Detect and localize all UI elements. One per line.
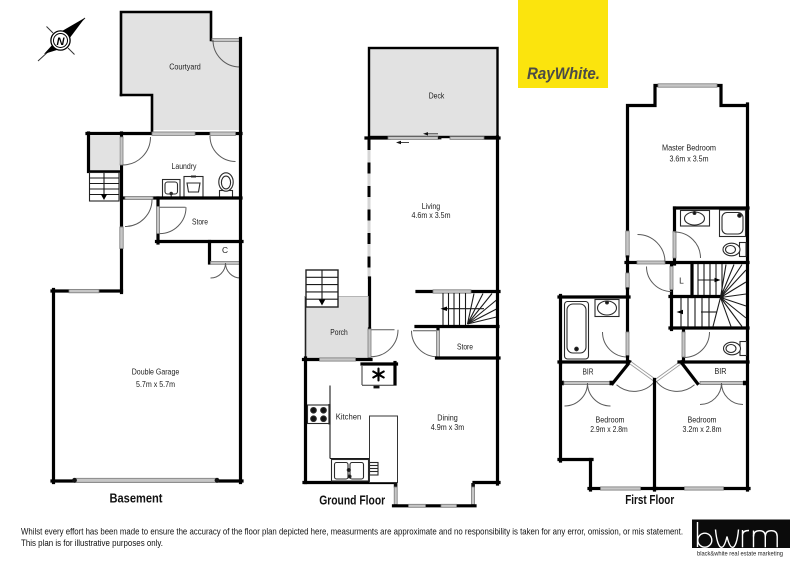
svg-text:Store: Store xyxy=(457,342,473,352)
svg-text:RayWhite.: RayWhite. xyxy=(527,65,600,83)
svg-text:Porch: Porch xyxy=(330,327,348,337)
svg-text:Dining: Dining xyxy=(437,413,458,423)
svg-text:Laundry: Laundry xyxy=(172,161,198,171)
svg-text:Master Bedroom: Master Bedroom xyxy=(662,143,716,153)
svg-text:Ground Floor: Ground Floor xyxy=(319,493,385,508)
svg-text:L: L xyxy=(679,276,684,286)
svg-text:N: N xyxy=(57,36,66,48)
svg-text:Store: Store xyxy=(192,217,208,227)
svg-text:Bedroom: Bedroom xyxy=(596,414,625,424)
svg-text:5.7m x 5.7m: 5.7m x 5.7m xyxy=(136,379,175,389)
svg-text:black&white real estate market: black&white real estate marketing xyxy=(697,551,784,558)
svg-text:3.6m x 3.5m: 3.6m x 3.5m xyxy=(670,154,709,164)
svg-text:Bedroom: Bedroom xyxy=(688,414,717,424)
svg-text:Whilst every effort has been m: Whilst every effort has been made to ens… xyxy=(21,527,683,538)
svg-text:4.9m x 3m: 4.9m x 3m xyxy=(431,422,465,432)
svg-text:Basement: Basement xyxy=(110,491,164,506)
svg-text:Courtyard: Courtyard xyxy=(169,62,201,72)
svg-text:Kitchen: Kitchen xyxy=(336,412,362,422)
svg-text:Double Garage: Double Garage xyxy=(132,367,180,377)
svg-text:2.9m x 2.8m: 2.9m x 2.8m xyxy=(590,424,628,434)
svg-text:Deck: Deck xyxy=(429,91,445,101)
svg-text:3.2m x 2.8m: 3.2m x 2.8m xyxy=(683,424,722,434)
svg-text:First Floor: First Floor xyxy=(625,492,674,507)
svg-text:BIR: BIR xyxy=(715,366,727,376)
svg-text:C: C xyxy=(222,245,228,255)
svg-text:This plan is for illustrative: This plan is for illustrative purposes o… xyxy=(21,538,163,549)
svg-text:4.6m x 3.5m: 4.6m x 3.5m xyxy=(412,210,451,220)
svg-text:BIR: BIR xyxy=(583,367,594,377)
